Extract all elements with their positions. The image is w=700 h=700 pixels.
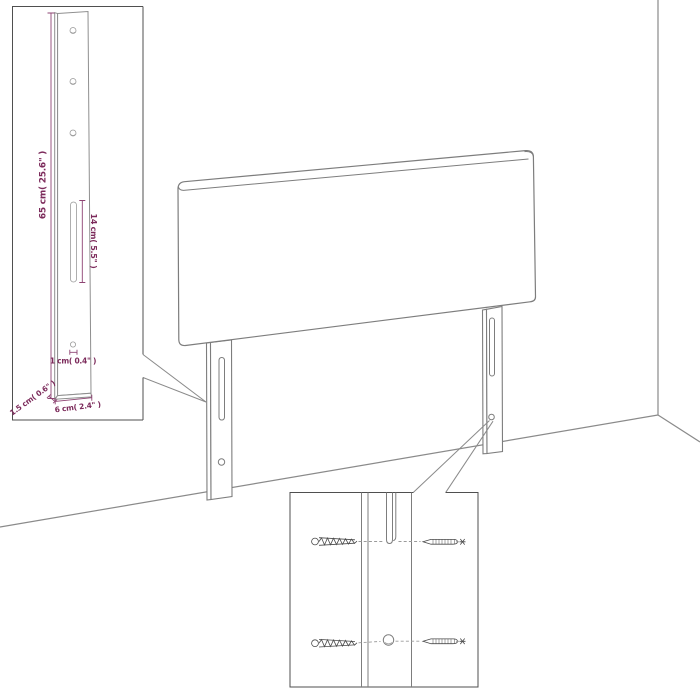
panel-face (178, 151, 536, 346)
inset-background (290, 493, 478, 688)
dimension-label-leg-height: 65 cm( 25.6" ) (39, 151, 49, 219)
fastener-detail-inset (290, 493, 478, 688)
headboard-leg-left (207, 340, 233, 500)
inset-leg-front-face (58, 12, 91, 396)
callout-line (143, 355, 206, 403)
callout-line (414, 421, 490, 493)
headboard-panel (178, 151, 536, 346)
floor-line-right (658, 415, 700, 442)
dimension-label-hole-diameter: 1 cm( 0.4" ) (50, 357, 96, 366)
leg-dimension-inset: 65 cm( 25.6" ) 14 cm( 5.5" ) 1 cm( 0.4" … (8, 7, 143, 421)
callout-line (143, 378, 206, 403)
callout-line (446, 421, 493, 492)
product-diagram: 65 cm( 25.6" ) 14 cm( 5.5" ) 1 cm( 0.4" … (0, 0, 700, 700)
left-inset-callout (143, 355, 206, 403)
right-inset-callout (414, 421, 494, 493)
inset-leg-drawing (55, 12, 92, 400)
assembly-diagram-canvas: 65 cm( 25.6" ) 14 cm( 5.5" ) 1 cm( 0.4" … (0, 0, 700, 700)
dimension-label-slot-length: 14 cm( 5.5" ) (89, 214, 98, 269)
